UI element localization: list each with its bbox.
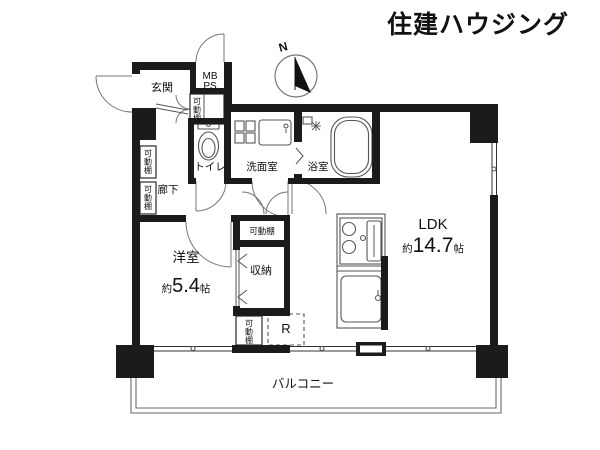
room-size-western: 約5.4帖 — [162, 275, 211, 297]
vanity-sink-icon — [259, 120, 291, 145]
ldk-south-window-left — [290, 347, 356, 352]
shelf-label-hall-upper: 可動棚 — [144, 149, 153, 175]
room-label-toilet: トイレ — [194, 161, 226, 173]
north-label: N — [277, 39, 289, 55]
entrance-step-line — [156, 104, 188, 114]
shelf-label-storage-top: 可動棚 — [249, 226, 275, 236]
meterbox-door-arc — [196, 34, 224, 62]
room-label-storage: 収納 — [250, 264, 272, 277]
logo-text: 住建ハウジング — [387, 10, 569, 39]
toilet-door-arc — [196, 181, 226, 211]
room-label-washroom: 洗面室 — [246, 160, 278, 173]
room-label-ldk: LDK — [418, 216, 447, 233]
room-label-entrance: 玄関 — [151, 80, 173, 94]
room-label-refrigerator: R — [281, 321, 290, 336]
room-label-balcony: バルコニー — [272, 377, 334, 391]
floorplan-page: N 住建ハウジング 玄関 MB PS トイレ 洗面室 浴室 廊下 洋室 約5.4… — [0, 0, 600, 450]
room-label-bathroom: 浴室 — [308, 160, 329, 173]
kitchen-sink-icon — [341, 276, 381, 322]
ldk-door-arc — [292, 180, 326, 214]
toilet-icon — [198, 120, 219, 160]
ldk-south-window-right — [386, 347, 476, 352]
room-label-hallway: 廊下 — [158, 183, 179, 196]
room-label-western: 洋室 — [173, 249, 200, 265]
hall-closet-bifold-arcs — [242, 192, 288, 214]
western-room-window — [154, 347, 232, 352]
storage-closet — [236, 250, 247, 306]
washroom-door-arc — [252, 181, 288, 217]
washer-pan-icon — [235, 121, 255, 143]
walls — [116, 62, 508, 378]
ldk-east-window — [492, 143, 497, 195]
shower-icon — [311, 121, 321, 131]
entrance-door-arc — [96, 76, 132, 112]
shelf-label-storage-bottom: 可動棚 — [245, 319, 254, 345]
kitchen-counter-icon — [337, 214, 388, 330]
floorplan-drawing: N 住建ハウジング 玄関 MB PS トイレ 洗面室 浴室 廊下 洋室 約5.4… — [0, 0, 600, 450]
shelf-label-hall-lower: 可動棚 — [144, 185, 153, 211]
north-arrow-icon — [295, 57, 311, 93]
bath-folding-door-icon — [296, 148, 303, 164]
shelf-label-shoe-closet: 可動棚 — [193, 97, 202, 123]
room-label-meterbox-line2: PS — [203, 81, 217, 92]
room-size-ldk: 約14.7帖 — [402, 234, 464, 257]
north-compass: N — [275, 39, 317, 97]
